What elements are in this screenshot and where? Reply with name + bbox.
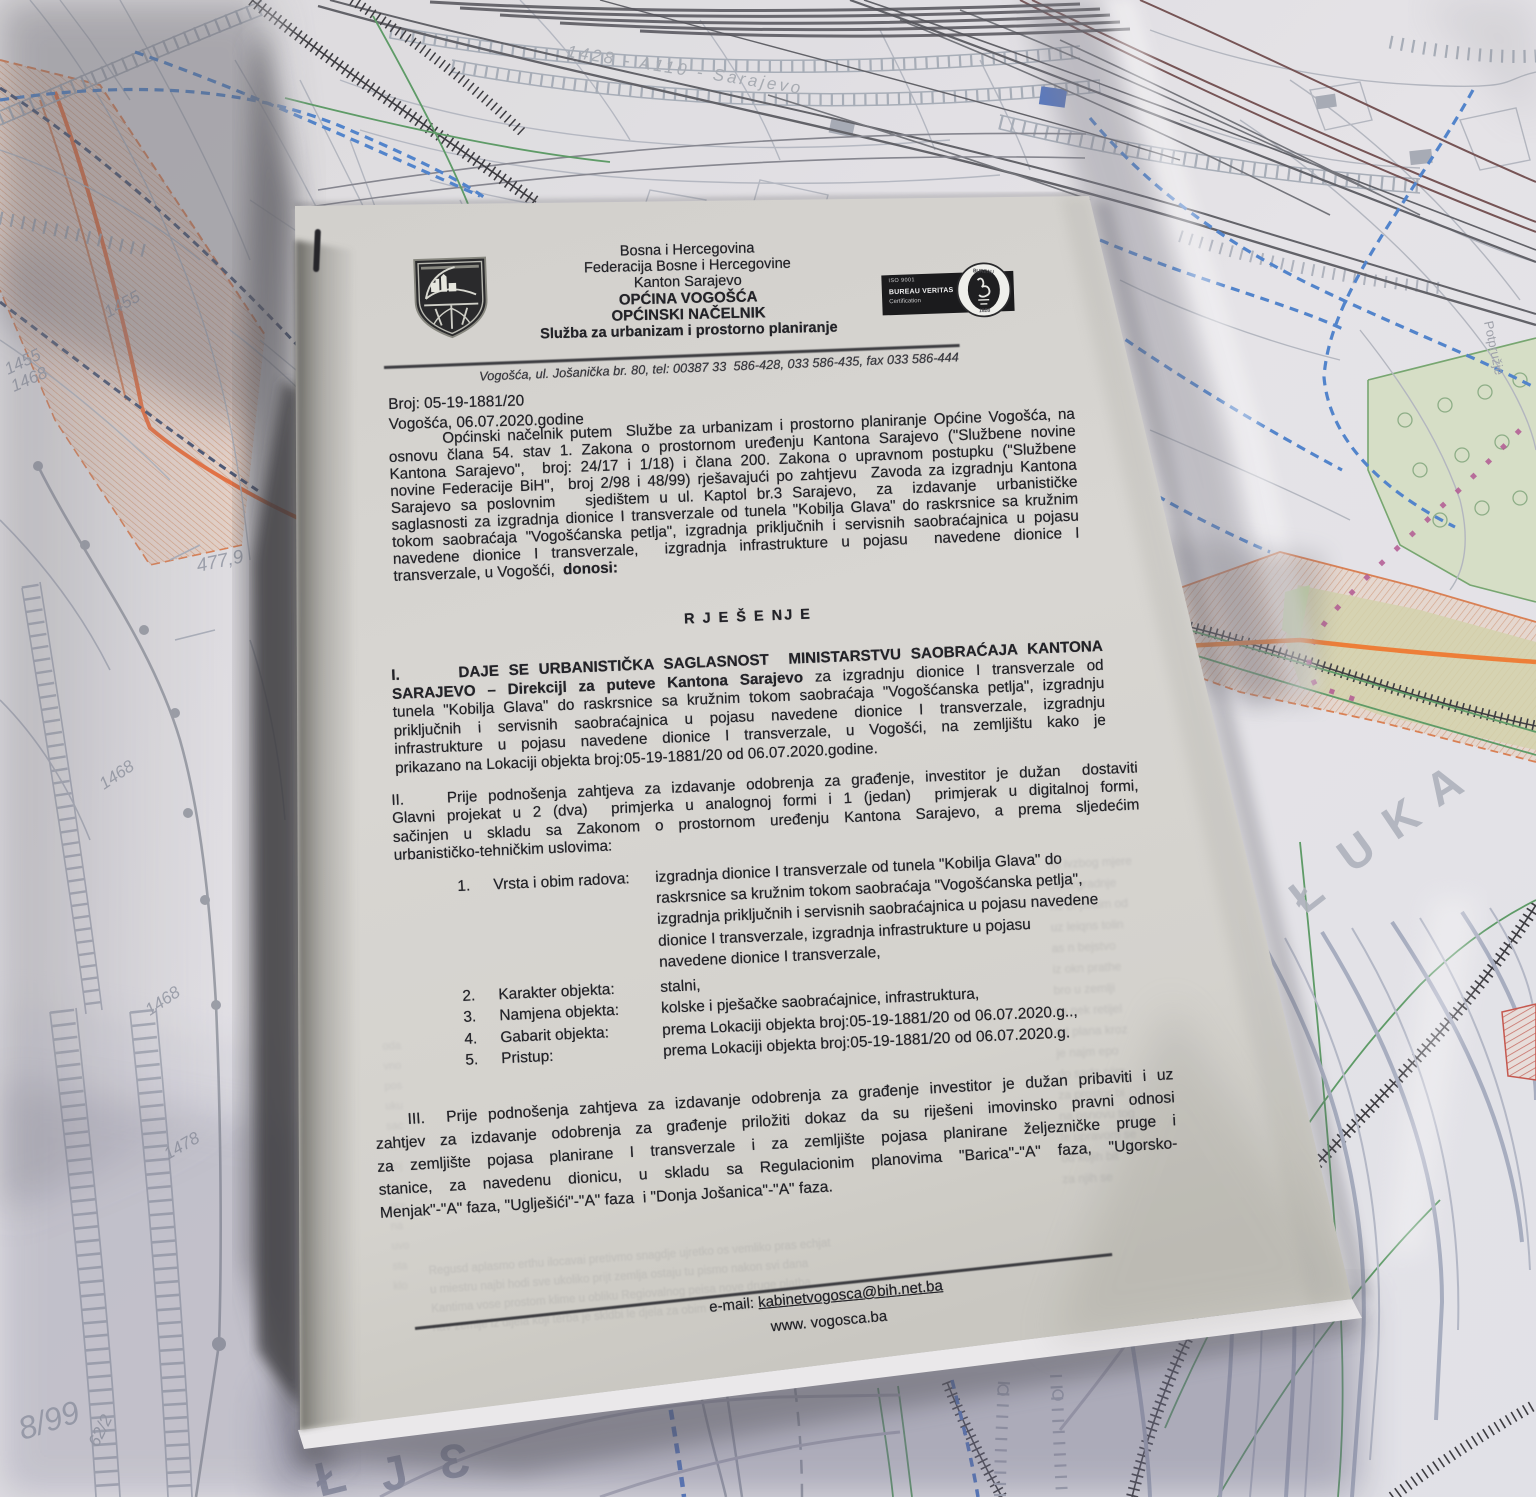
svg-text:1828: 1828 — [979, 308, 991, 314]
